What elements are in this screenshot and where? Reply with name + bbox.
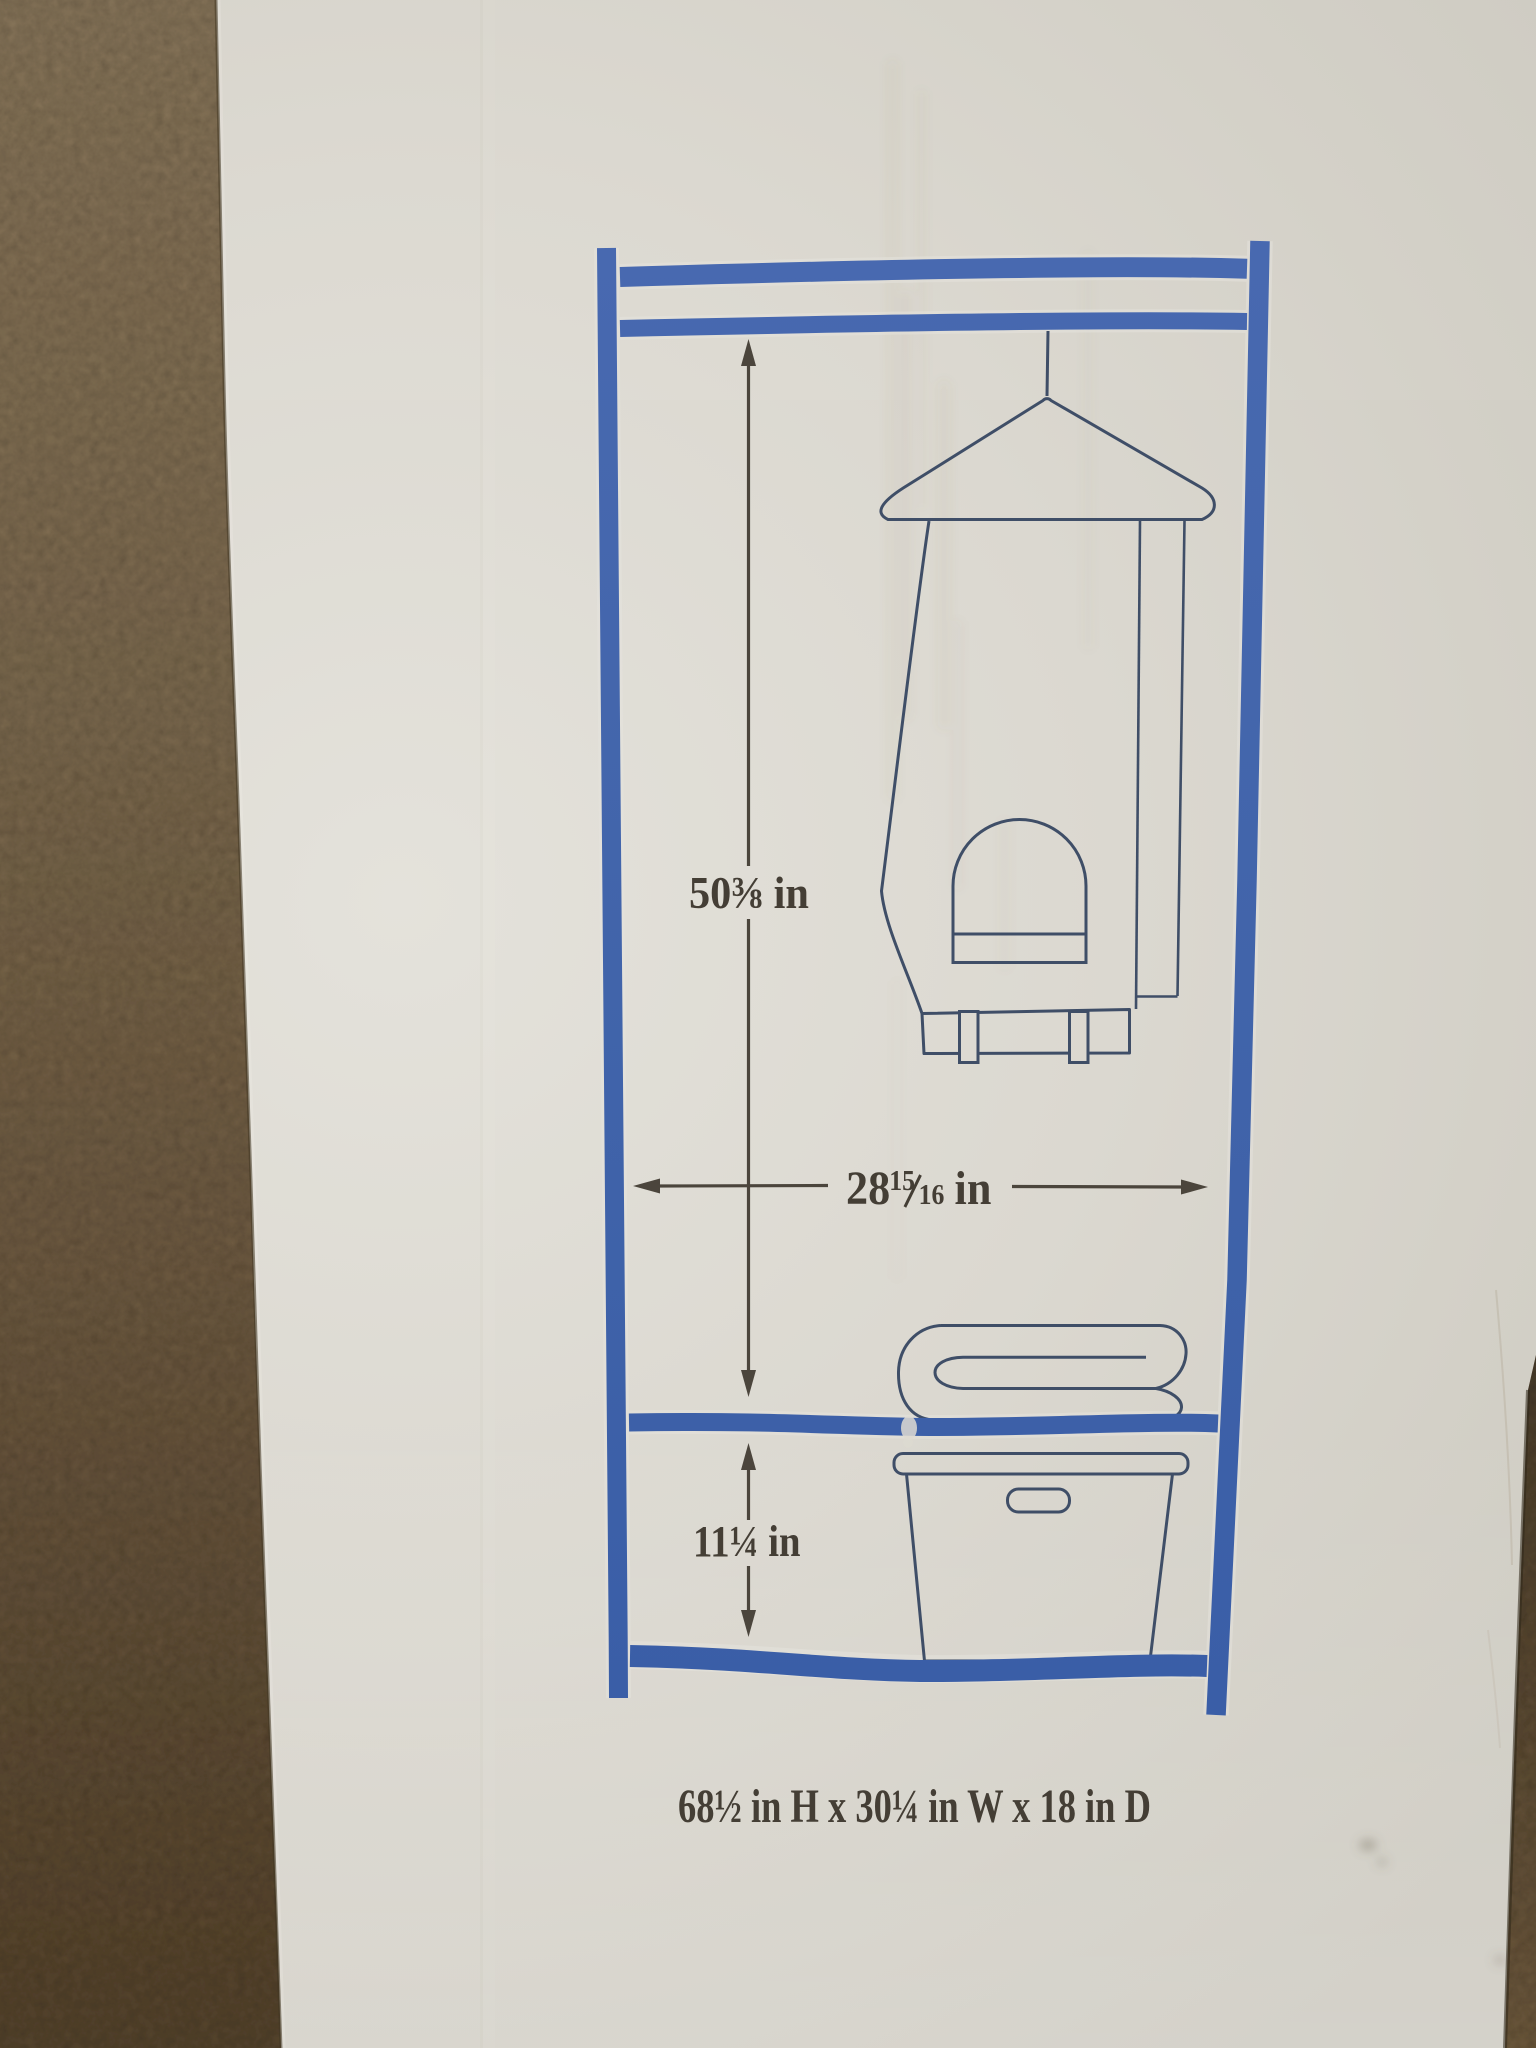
svg-text:16: 16 (919, 1179, 945, 1210)
svg-text:11¼ in: 11¼ in (693, 1517, 801, 1566)
svg-text:in: in (955, 1161, 992, 1214)
svg-text:28: 28 (846, 1161, 890, 1214)
svg-text:68½ in H x 30¼ in W x 18 in D: 68½ in H x 30¼ in W x 18 in D (678, 1780, 1151, 1833)
svg-text:50⅜ in: 50⅜ in (689, 867, 809, 918)
